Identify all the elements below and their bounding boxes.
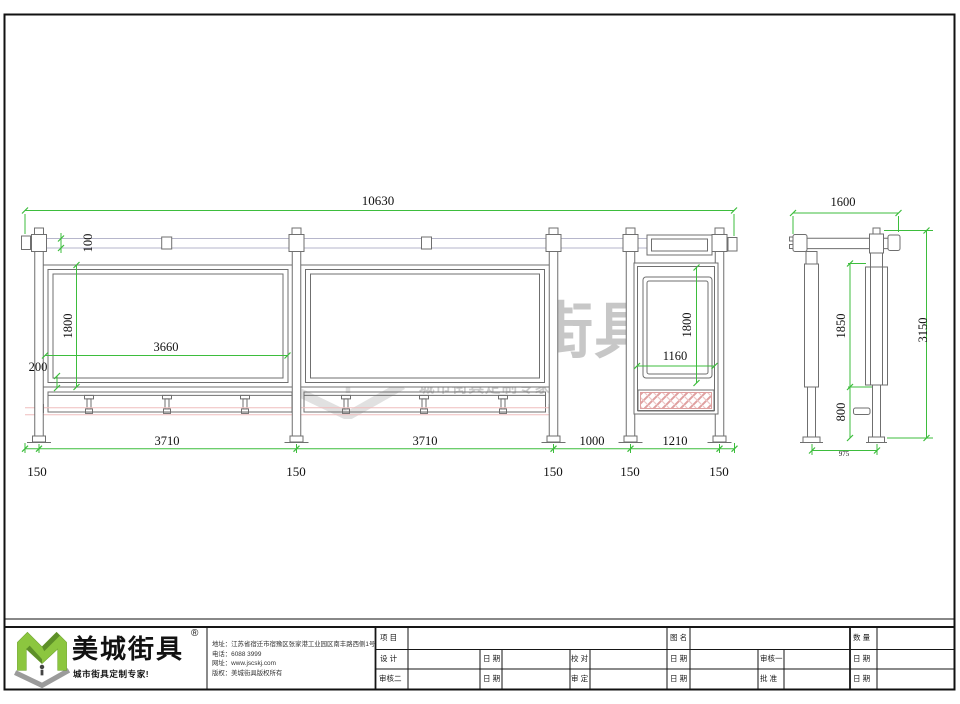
field-date-5: 日 期 <box>670 673 687 685</box>
dim-side-base: 975 <box>824 450 864 458</box>
field-verify: 审 定 <box>571 673 588 685</box>
logo-registered-mark: ® <box>191 629 198 639</box>
contact-copyright: 版权：美城街具版权所有 <box>212 669 375 679</box>
dim-post-offset-5: 150 <box>699 465 739 479</box>
logo-brand-text: 美城街具 <box>72 634 184 664</box>
dim-side-upper: 1850 <box>834 306 848 346</box>
field-drawing-name: 图 名 <box>670 632 687 644</box>
dim-side-width: 1600 <box>813 195 873 209</box>
dim-side-total: 3150 <box>916 310 930 350</box>
company-contact-info: 地址：江苏省宿迁市宿豫区张家港工业园区南丰路西侧1号 电话：6088 3999 … <box>212 640 375 678</box>
rail-sign-box <box>647 235 712 255</box>
dim-bay1: 3710 <box>137 434 197 448</box>
dim-post-offset-4: 150 <box>610 465 650 479</box>
dim-bay2: 3710 <box>395 434 455 448</box>
dim-beam-height: 100 <box>81 223 95 263</box>
field-proofread: 校 对 <box>571 653 588 665</box>
contact-address: 地址：江苏省宿迁市宿豫区张家港工业园区南丰路西侧1号 <box>212 640 375 650</box>
field-review2: 审核二 <box>379 673 402 685</box>
drawing-sheet: 美城街具 ® 城市街具定制专家！ <box>0 0 960 704</box>
dim-panel-height: 1800 <box>61 306 75 346</box>
dim-post-offset-2: 150 <box>276 465 316 479</box>
dim-post-offset-3: 150 <box>533 465 573 479</box>
field-date-4: 日 期 <box>483 673 500 685</box>
field-date-3: 日 期 <box>853 653 870 665</box>
dim-panel-width: 3660 <box>136 340 196 354</box>
contact-website: 网址：www.jscskj.com <box>212 659 375 669</box>
bench-back-rails <box>25 408 557 415</box>
dim-lightbox-width: 1160 <box>645 349 705 363</box>
dim-lightbox-bay: 1210 <box>645 434 705 448</box>
front-elevation <box>22 228 738 443</box>
field-date-6: 日 期 <box>853 673 870 685</box>
dim-post-offset-1: 150 <box>17 465 57 479</box>
dim-gap: 1000 <box>562 434 622 448</box>
company-logo-mark <box>15 632 69 685</box>
field-date-2: 日 期 <box>670 653 687 665</box>
field-approve: 批 准 <box>760 673 777 685</box>
contact-phone: 电话：6088 3999 <box>212 650 375 660</box>
field-review1: 审核一 <box>760 653 783 665</box>
lightbox <box>634 263 718 414</box>
field-design: 设 计 <box>380 653 397 665</box>
dim-lightbox-height: 1800 <box>680 305 694 345</box>
field-project: 项 目 <box>380 632 397 644</box>
logo-tagline: 城市街具定制专家! <box>73 669 149 680</box>
dim-overall-width: 10630 <box>348 194 408 208</box>
dim-panel-bottom-offset: 200 <box>18 360 58 374</box>
field-date-1: 日 期 <box>483 653 500 665</box>
field-quantity: 数 量 <box>853 632 870 644</box>
dim-side-lower: 800 <box>834 392 848 432</box>
